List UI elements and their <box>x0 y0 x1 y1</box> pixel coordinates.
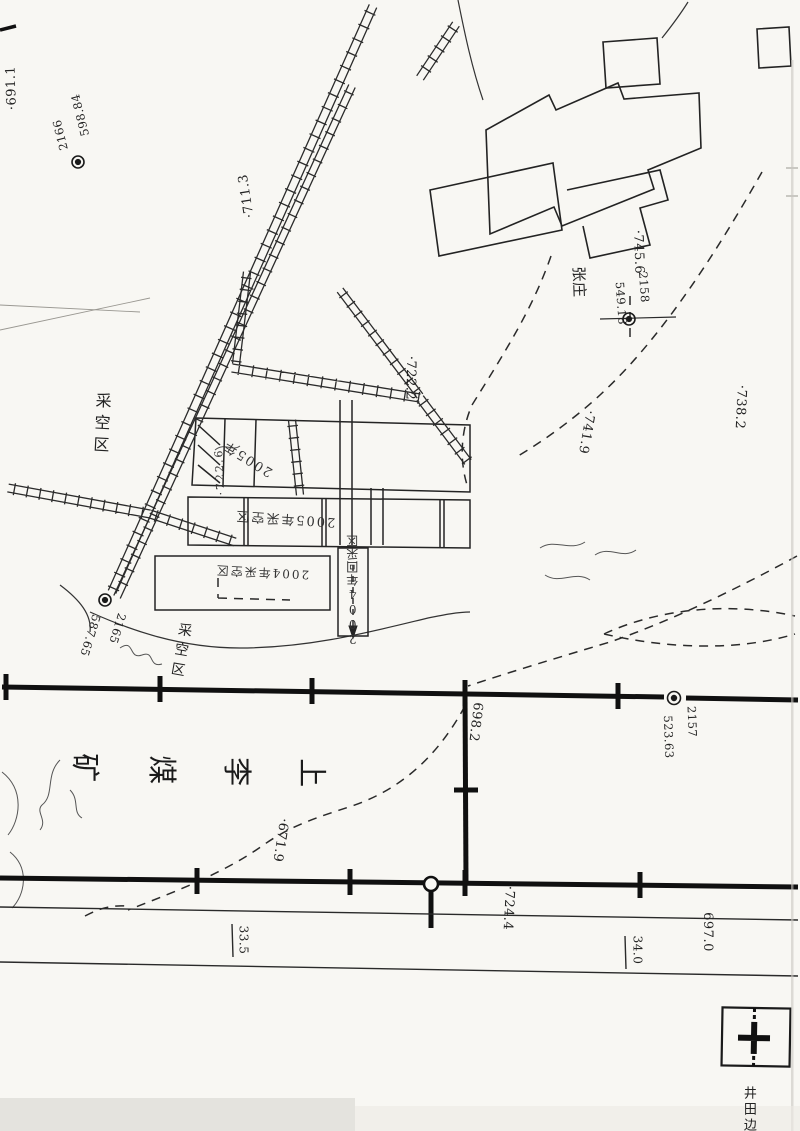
ladder-roadway <box>149 510 237 546</box>
contour-curves <box>60 0 688 648</box>
elevation-label-691: ·691.1 <box>4 66 19 111</box>
ladder-roadway <box>287 420 304 496</box>
distance-label-34-0: 34.0 <box>631 936 644 965</box>
legend-box <box>722 1007 791 1066</box>
ladder-roadway <box>7 483 150 518</box>
ladder-roadway <box>417 22 460 80</box>
village-name-zhangzhuang: 张庄 <box>570 266 587 298</box>
mine-name-char-mei: 煤 <box>147 755 177 785</box>
building-outlines <box>430 27 791 258</box>
mine-name-char-shang: 上 <box>297 758 327 788</box>
pencil-lines <box>0 168 798 330</box>
point-id: 2157 <box>685 706 700 738</box>
mine-name-char-kuang: 矿 <box>70 753 100 783</box>
elevation-label-738: ·738.2 <box>732 384 748 429</box>
scan-artifacts <box>0 26 800 1131</box>
ladder-roadway <box>417 396 472 465</box>
elevation-label-722: ·722.2 <box>403 356 417 401</box>
ladder-roadway <box>231 363 420 404</box>
point-id: 2158 <box>636 271 652 303</box>
working-face-2004-annotation: 2004年回采区 <box>347 534 360 646</box>
scanned-mine-map: ·691.1 2166 598.84 ·711.3 ·745.6 张庄 2158… <box>0 0 800 1131</box>
point-elevation: 523.63 <box>661 715 677 759</box>
road-lines <box>0 907 798 976</box>
dashed-curves <box>85 172 797 916</box>
goaf-area-label-1: 采空区 <box>90 392 110 459</box>
map-linework <box>0 0 800 1131</box>
legend-boundary-label: 井田边 <box>741 1086 755 1131</box>
point-elevation: 549.18 <box>613 281 630 325</box>
elevation-label-697: 697.0 <box>700 912 714 952</box>
mine-name-char-li: 李 <box>222 757 252 787</box>
elevation-label-724: ·724.4 <box>500 885 516 930</box>
handwritten-elevation-722-6: ·722.6 <box>213 448 227 496</box>
survey-point-2158: 2158 549.18 <box>611 251 652 326</box>
ladder-roadway <box>108 4 377 593</box>
distance-label-33-5: 33.5 <box>237 926 250 955</box>
survey-point-2157: 2157 523.63 <box>661 685 700 759</box>
